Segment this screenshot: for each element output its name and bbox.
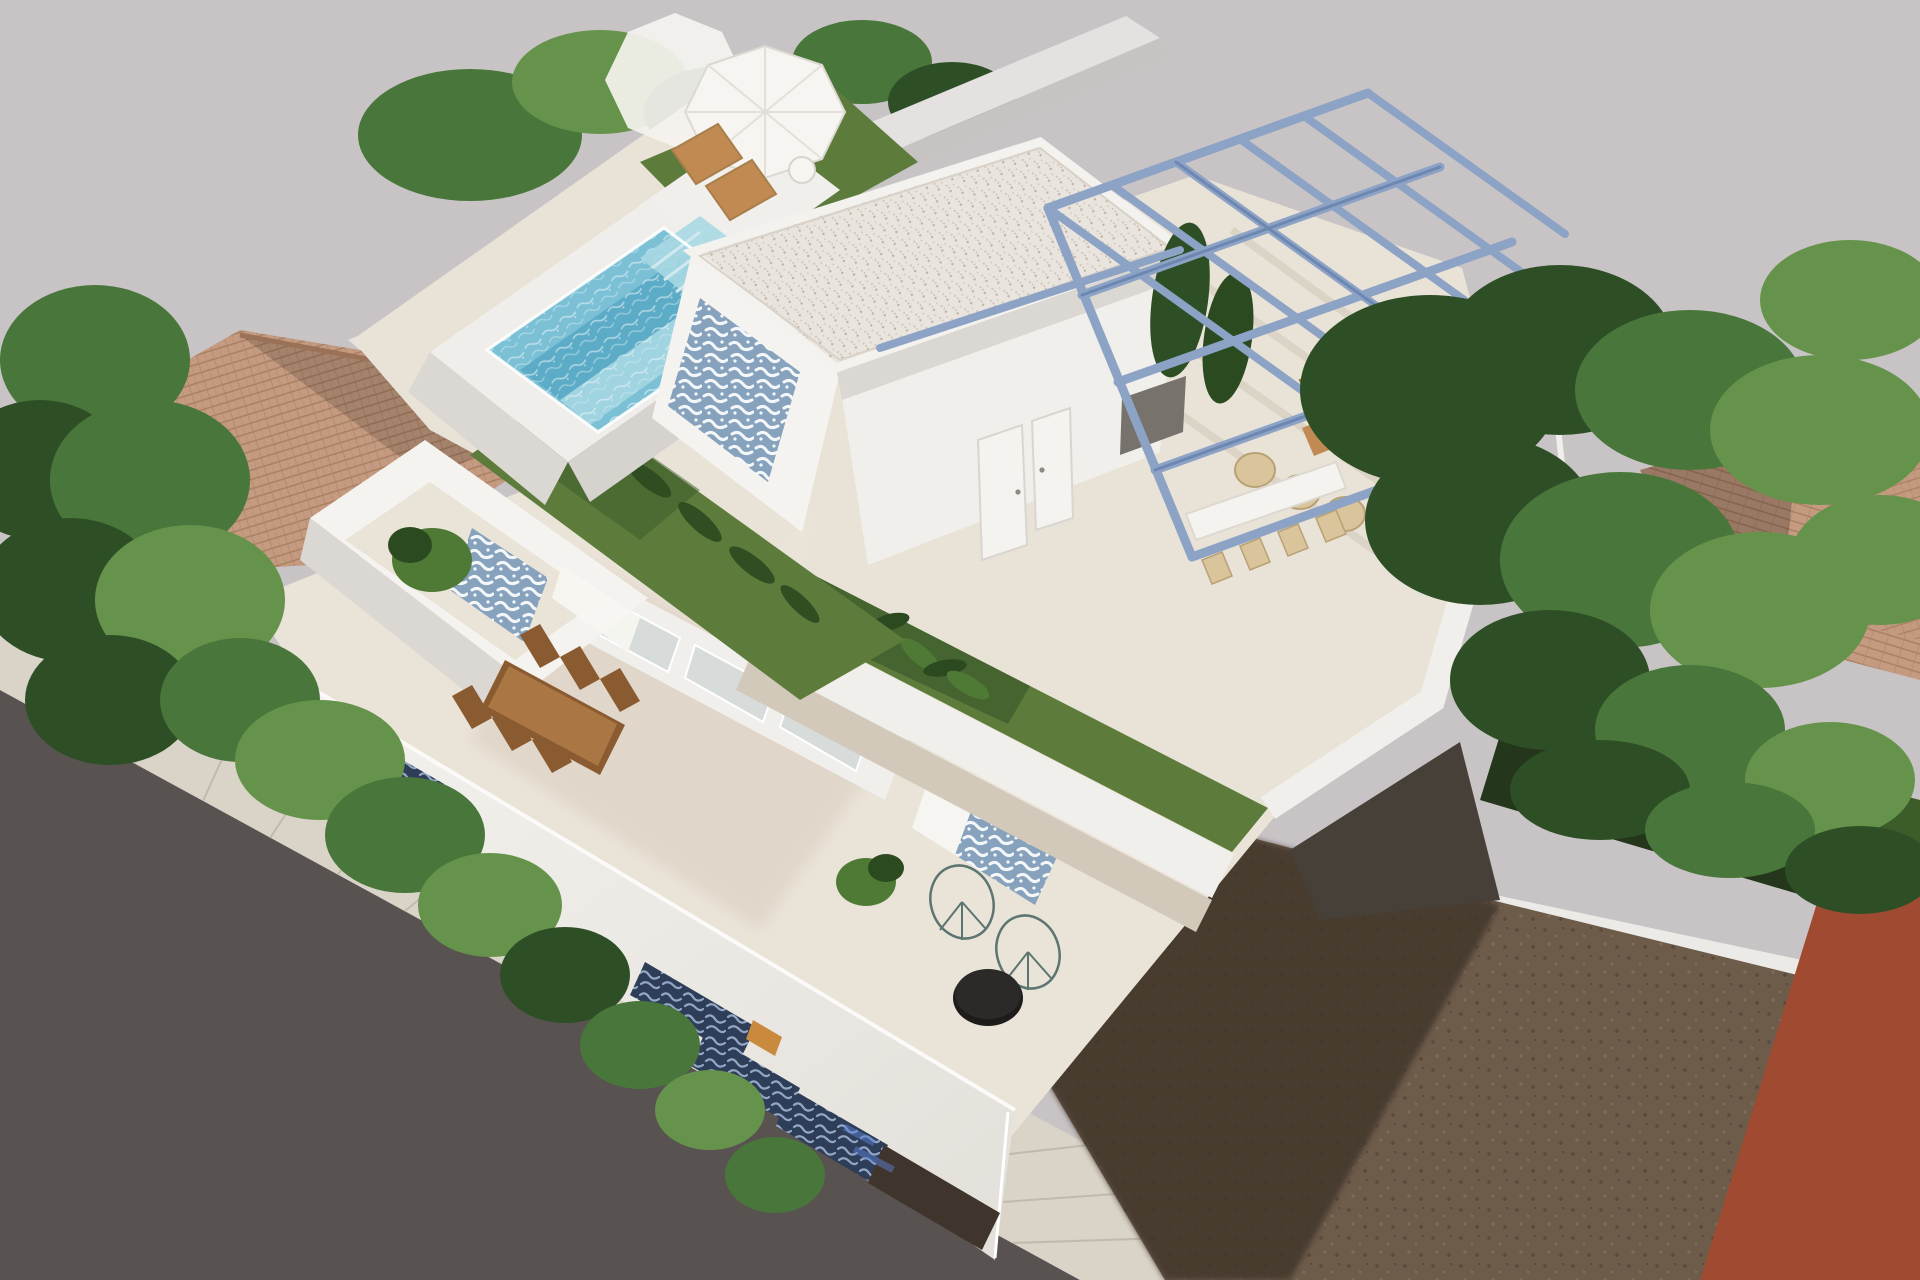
terrace-plant (868, 854, 904, 882)
villa-render (0, 0, 1920, 1280)
balcony-planter (388, 527, 432, 563)
hedge (655, 1070, 765, 1150)
door-handle (1039, 467, 1044, 472)
pavilion-door (1032, 408, 1073, 530)
side-table (789, 157, 815, 183)
render-canvas (0, 0, 1920, 1280)
black-coffee-table-top (955, 969, 1021, 1019)
hedge (725, 1137, 825, 1213)
door-handle (1015, 489, 1020, 494)
tree (1710, 355, 1920, 505)
